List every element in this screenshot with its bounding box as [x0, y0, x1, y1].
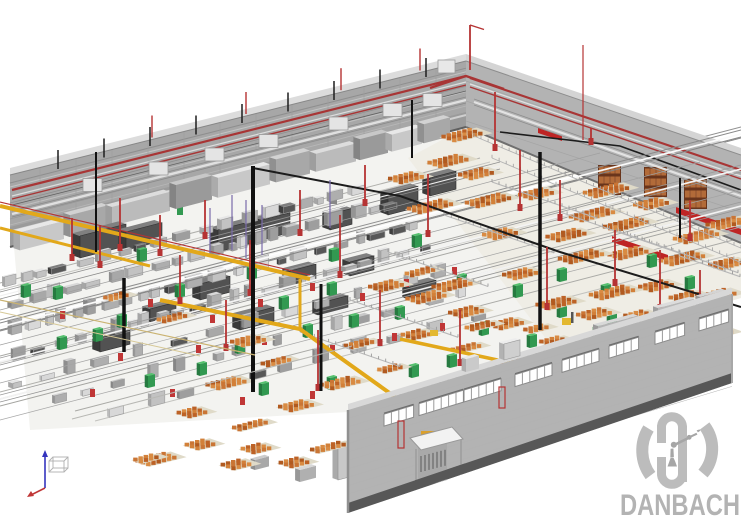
svg-text:DANBACH: DANBACH	[620, 489, 740, 522]
